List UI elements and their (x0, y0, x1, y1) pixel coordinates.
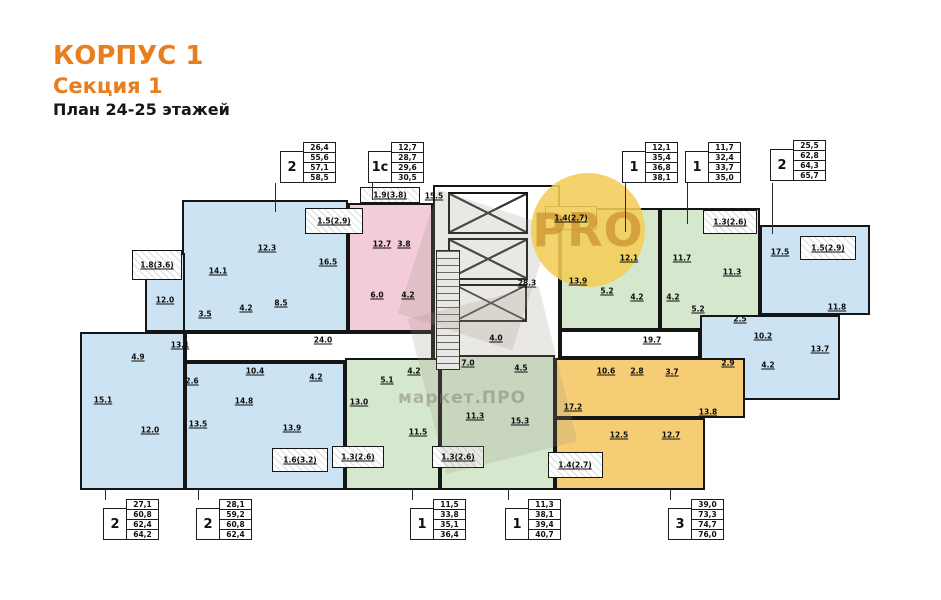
room-area-label: 24.0 (314, 336, 333, 345)
room-area-label: 1.5(2.9) (811, 244, 844, 253)
room-area-label: 12.0 (156, 296, 175, 305)
apartment-legend-table: 1с12,728,729,630,5 (368, 143, 424, 183)
apartment-areas-column: 12,728,729,630,5 (391, 143, 424, 183)
room-area-label: 17.5 (771, 248, 790, 257)
room-area-label: 12.7 (373, 240, 392, 249)
apartment-areas-column: 39,073,374,776,0 (691, 500, 724, 540)
apartment-area-value: 38,1 (645, 172, 678, 183)
section-title: Секция 1 (53, 73, 230, 100)
room-area-label: 8.5 (274, 299, 287, 308)
apartment-area-value: 58,5 (303, 172, 336, 183)
room-area-label: 28.3 (518, 279, 537, 288)
room-area-label: 4.0 (489, 334, 502, 343)
watermark-logo-text: PRO (532, 203, 643, 257)
room-area-label: 11.3 (723, 268, 742, 277)
apartment-legend-table: 226,455,657,158,5 (280, 143, 336, 183)
apartment-area-value: 65,7 (793, 170, 826, 181)
apartment-legend-table: 225,562,864,365,7 (770, 141, 826, 181)
corridor-right (560, 330, 700, 358)
room-area-label: 13.9 (283, 424, 302, 433)
room-area-label: 6.0 (370, 291, 383, 300)
room-area-label: 3.7 (665, 368, 678, 377)
room-area-label: 7.0 (461, 359, 474, 368)
room-area-label: 11.3 (466, 412, 485, 421)
apartment-legend-table: 111,338,139,440,7 (505, 500, 561, 540)
apartment-legend-table: 111,533,835,136,4 (410, 500, 466, 540)
room-area-label: 5.1 (380, 376, 393, 385)
apartment-type-label: 1 (410, 508, 434, 540)
apartment-area-value: 30,5 (391, 172, 424, 183)
room-area-label: 1.4(2.7) (558, 461, 591, 470)
apartment-area-value: 35,0 (708, 172, 741, 183)
room-area-label: 2.9 (721, 359, 734, 368)
plan-title: План 24-25 этажей (53, 100, 230, 121)
apartment-areas-column: 26,455,657,158,5 (303, 143, 336, 183)
legend-leader-line (625, 183, 626, 232)
watermark-brand-text: маркет.ПРО (398, 388, 526, 408)
room-area-label: 14.1 (209, 267, 228, 276)
room-area-label: 4.5 (514, 364, 527, 373)
room-area-label: 4.2 (239, 304, 252, 313)
room-area-label: 1.6(3.2) (283, 456, 316, 465)
room-area-label: 1.3(2.6) (441, 453, 474, 462)
room-area-label: 15.3 (511, 417, 530, 426)
apartment-areas-column: 11,533,835,136,4 (433, 500, 466, 540)
room-area-label: 15.5 (425, 192, 444, 201)
apartment-legend-table: 112,135,436,838,1 (622, 143, 678, 183)
room-area-label: 10.4 (246, 367, 265, 376)
room-area-label: 1.3(2.6) (341, 453, 374, 462)
apartment-type-label: 1 (685, 151, 709, 183)
room-area-label: 2.5 (733, 315, 746, 324)
apartment-areas-column: 27,160,862,464,2 (126, 500, 159, 540)
room-area-label: 10.6 (597, 367, 616, 376)
room-area-label: 13.8 (699, 408, 718, 417)
legend-leader-line (275, 183, 276, 212)
watermark-logo-circle: PRO (531, 173, 645, 287)
room-area-label: 13.7 (811, 345, 830, 354)
room-area-label: 2.8 (630, 367, 643, 376)
apartment-area-value: 36,4 (433, 529, 466, 540)
room-area-label: 5.2 (600, 287, 613, 296)
apartment-area-value: 76,0 (691, 529, 724, 540)
apartment-type-label: 2 (103, 508, 127, 540)
room-area-label: 17.2 (564, 403, 583, 412)
room-area-label: 11.7 (673, 254, 692, 263)
room-area-label: 12.3 (258, 244, 277, 253)
apartment-type-label: 1 (505, 508, 529, 540)
room-area-label: 4.9 (131, 353, 144, 362)
room-area-label: 15.1 (94, 396, 113, 405)
room-area-label: 13.9 (569, 277, 588, 286)
room-area-label: 3.8 (397, 240, 410, 249)
apartment-areas-column: 25,562,864,365,7 (793, 141, 826, 181)
room-area-label: 1.3(2.6) (713, 218, 746, 227)
apartment-areas-column: 28,159,260,862,4 (219, 500, 252, 540)
room-area-label: 1.5(2.9) (317, 217, 350, 226)
legend-leader-line (772, 183, 773, 234)
room-area-label: 12.7 (662, 431, 681, 440)
title-block: КОРПУС 1 Секция 1 План 24-25 этажей (53, 40, 230, 121)
apartment-areas-column: 11,338,139,440,7 (528, 500, 561, 540)
room-area-label: 11.8 (828, 303, 847, 312)
apartment-areas-column: 11,732,433,735,0 (708, 143, 741, 183)
room-area-label: 14.8 (235, 397, 254, 406)
room-area-label: 13.0 (350, 398, 369, 407)
legend-leader-line (687, 183, 688, 224)
apartment-legend-table: 228,159,260,862,4 (196, 500, 252, 540)
apartment-type-label: 1с (368, 151, 392, 183)
room-area-label: 4.2 (401, 291, 414, 300)
apartment-area-value: 40,7 (528, 529, 561, 540)
room-area-label: 12.1 (620, 254, 639, 263)
apartment-type-label: 3 (668, 508, 692, 540)
apartment-legend-table: 111,732,433,735,0 (685, 143, 741, 183)
apartment-type-label: 2 (196, 508, 220, 540)
floorplan-page: КОРПУС 1 Секция 1 План 24-25 этажей 12.3… (0, 0, 941, 600)
room-area-label: 13.5 (189, 420, 208, 429)
room-area-label: 10.2 (754, 332, 773, 341)
room-area-label: 12.5 (610, 431, 629, 440)
room-area-label: 4.2 (309, 373, 322, 382)
apartment-type-label: 1 (622, 151, 646, 183)
room-area-label: 4.2 (630, 293, 643, 302)
room-area-label: 19.7 (643, 336, 662, 345)
room-area-label: 4.2 (407, 367, 420, 376)
room-area-label: 4.2 (666, 293, 679, 302)
apartment-legend-table: 339,073,374,776,0 (668, 500, 724, 540)
apartment-type-label: 2 (280, 151, 304, 183)
apartment-type-label: 2 (770, 149, 794, 181)
room-area-label: 1.9(3.8) (373, 191, 406, 200)
room-area-label: 3.5 (198, 310, 211, 319)
room-area-label: 16.5 (319, 258, 338, 267)
room-area-label: 1.4(2.7) (554, 214, 587, 223)
room-area-label: 4.2 (761, 361, 774, 370)
apartment-area-value: 62,4 (219, 529, 252, 540)
room-area-label: 1.8(3.6) (140, 261, 173, 270)
room-area-label: 11.5 (409, 428, 428, 437)
apartment-legend-table: 227,160,862,464,2 (103, 500, 159, 540)
room-area-label: 5.2 (691, 305, 704, 314)
room-area-label: 13.1 (171, 341, 190, 350)
room-area-label: 12.0 (141, 426, 160, 435)
apartment-area-value: 64,2 (126, 529, 159, 540)
apartment-areas-column: 12,135,436,838,1 (645, 143, 678, 183)
room-area-label: 2.6 (185, 377, 198, 386)
building-title: КОРПУС 1 (53, 40, 230, 73)
